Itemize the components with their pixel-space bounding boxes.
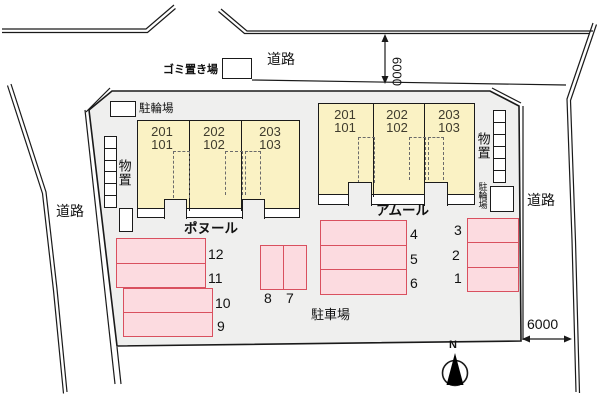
stair-outline xyxy=(409,137,426,180)
parking-number: 10 xyxy=(215,295,231,311)
stair-outline xyxy=(428,137,444,180)
bike-parking-label-right: 駐輪場 xyxy=(477,182,486,209)
parking-space xyxy=(261,246,283,289)
entrance-notch xyxy=(164,199,187,219)
bike-parking-box-right xyxy=(490,186,514,212)
storage-units-right xyxy=(493,111,506,183)
stair-outline xyxy=(358,137,375,183)
building-name-amour: アムール xyxy=(376,204,429,218)
stair-outline xyxy=(173,151,190,198)
storage-cell xyxy=(104,195,117,208)
building-veranda xyxy=(138,208,299,217)
storage-label-left: 物置 xyxy=(117,159,131,187)
road-label-left: 道路 xyxy=(56,204,84,219)
parking-space xyxy=(468,242,518,266)
site-plan: ゴミ置き場 道路 道路 道路 6000 6000 N 駐輪場 物置 201101… xyxy=(0,0,600,400)
bike-parking-label-top: 駐輪場 xyxy=(139,103,174,115)
parking-block-10-9 xyxy=(123,288,213,337)
parking-number: 6 xyxy=(410,275,418,291)
parking-number: 11 xyxy=(208,270,223,286)
unit-numbers: 202102 xyxy=(386,108,408,134)
parking-block-4-5-6 xyxy=(320,220,407,295)
parking-number: 5 xyxy=(410,251,418,267)
road-label-right: 道路 xyxy=(527,193,555,208)
parking-number: 12 xyxy=(208,246,224,262)
parking-number: 4 xyxy=(410,226,418,242)
entrance-notch xyxy=(242,199,265,219)
parking-space xyxy=(283,246,306,289)
parking-block-3-2-1 xyxy=(467,218,519,292)
parking-space xyxy=(468,267,518,291)
parking-space xyxy=(321,245,406,270)
unit-numbers: 201101 xyxy=(334,108,356,134)
parking-space xyxy=(117,239,205,263)
parking-block-12-11 xyxy=(116,238,206,288)
parking-space xyxy=(124,312,212,336)
parking-space xyxy=(321,269,406,294)
parking-lot-label: 駐車場 xyxy=(311,308,350,322)
parking-number: 7 xyxy=(286,290,294,306)
unit-numbers: 202102 xyxy=(203,125,225,151)
garbage-box xyxy=(222,58,252,79)
garbage-area-label: ゴミ置き場 xyxy=(163,65,218,77)
parking-number: 3 xyxy=(454,222,462,238)
storage-units-left xyxy=(104,137,117,208)
parking-number: 8 xyxy=(264,290,272,306)
parking-space xyxy=(468,219,518,242)
stair-outline xyxy=(225,151,243,195)
dimension-right xyxy=(522,336,572,343)
parking-space xyxy=(321,221,406,245)
parking-block-8-7 xyxy=(260,245,307,290)
unit-numbers: 203103 xyxy=(438,108,460,134)
dimension-top xyxy=(382,34,389,84)
building-name-ponule: ポヌール xyxy=(184,222,238,236)
storage-label-right: 物置 xyxy=(476,132,490,160)
parking-space xyxy=(124,289,212,312)
compass-north-label: N xyxy=(449,340,457,352)
storage-cell xyxy=(493,170,506,183)
stair-outline xyxy=(245,151,261,195)
parking-number: 2 xyxy=(452,247,460,263)
bike-parking-box-top xyxy=(110,101,136,117)
unit-numbers: 201101 xyxy=(151,125,173,151)
road-label-top: 道路 xyxy=(267,52,295,67)
parking-number: 9 xyxy=(217,318,225,334)
utility-box xyxy=(119,208,133,232)
parking-number: 1 xyxy=(454,270,462,286)
parking-space xyxy=(117,263,205,288)
unit-numbers: 203103 xyxy=(259,125,281,151)
dimension-right-value: 6000 xyxy=(527,317,558,332)
entrance-notch xyxy=(348,182,372,206)
compass-icon xyxy=(443,353,468,386)
